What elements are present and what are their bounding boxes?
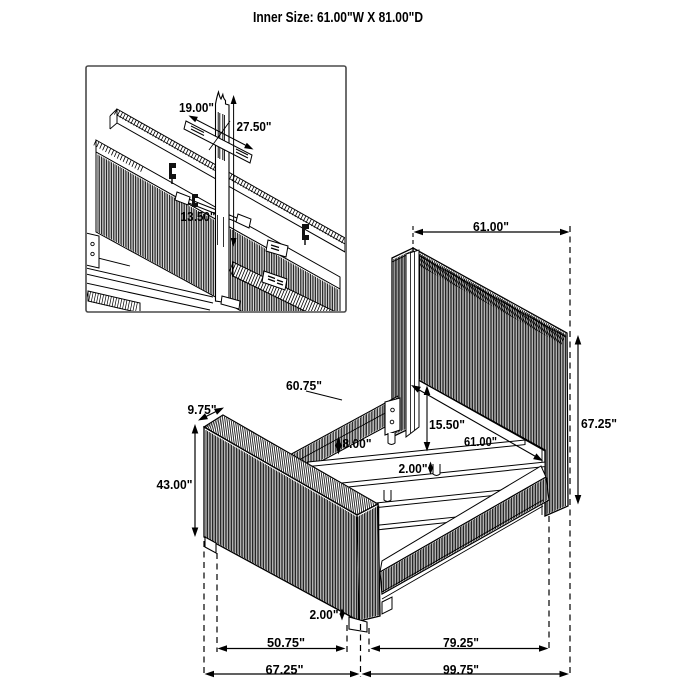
svg-text:13.50": 13.50" xyxy=(181,209,216,224)
svg-text:60.75": 60.75" xyxy=(286,378,322,393)
svg-text:15.50": 15.50" xyxy=(429,417,465,432)
svg-text:99.75": 99.75" xyxy=(443,662,479,677)
svg-text:50.75": 50.75" xyxy=(267,635,305,650)
svg-text:2.00": 2.00" xyxy=(310,607,339,622)
svg-text:Inner Size: 61.00"W X 81.00"D: Inner Size: 61.00"W X 81.00"D xyxy=(253,10,423,26)
svg-text:8.00": 8.00" xyxy=(343,436,372,451)
svg-text:79.25": 79.25" xyxy=(443,635,479,650)
svg-text:9.75": 9.75" xyxy=(188,402,217,417)
svg-text:2.00": 2.00" xyxy=(399,461,428,476)
svg-text:61.00": 61.00" xyxy=(464,434,497,449)
svg-text:43.00": 43.00" xyxy=(157,477,193,492)
svg-text:27.50": 27.50" xyxy=(237,119,272,134)
svg-text:67.25": 67.25" xyxy=(581,416,617,431)
svg-text:67.25": 67.25" xyxy=(266,662,304,677)
svg-text:19.00": 19.00" xyxy=(179,100,214,115)
svg-text:61.00": 61.00" xyxy=(473,219,509,234)
